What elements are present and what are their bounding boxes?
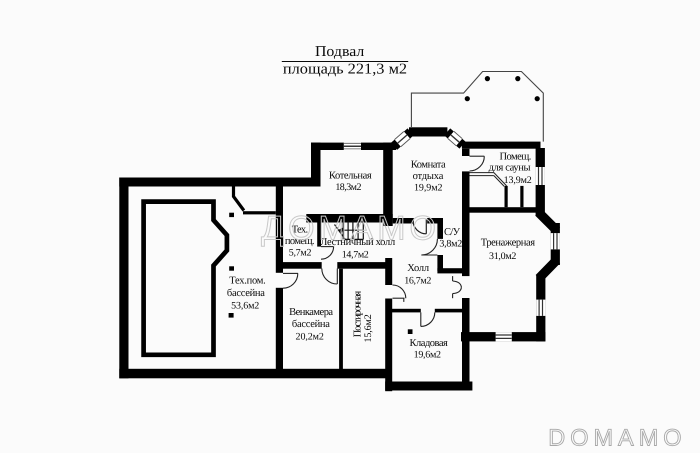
svg-text:для сауны: для сауны <box>489 162 531 173</box>
svg-text:31,0м2: 31,0м2 <box>489 251 516 262</box>
svg-text:Тренажерная: Тренажерная <box>481 238 536 249</box>
svg-text:16,7м2: 16,7м2 <box>404 276 431 287</box>
svg-text:площадь 221,3 м2: площадь 221,3 м2 <box>283 61 407 77</box>
svg-text:19,9м2: 19,9м2 <box>414 183 443 194</box>
svg-text:С/У: С/У <box>444 227 461 238</box>
svg-text:15,6м2: 15,6м2 <box>363 314 374 342</box>
svg-text:Тех.пом.: Тех.пом. <box>229 275 266 286</box>
svg-text:Комната: Комната <box>411 160 446 171</box>
svg-text:20,2м2: 20,2м2 <box>296 332 324 343</box>
svg-text:53,6м2: 53,6м2 <box>231 301 259 312</box>
svg-text:18,3м2: 18,3м2 <box>335 182 361 193</box>
svg-text:DOMAMO: DOMAMO <box>548 424 686 450</box>
svg-text:Холл: Холл <box>407 263 429 274</box>
svg-text:19,6м2: 19,6м2 <box>414 350 441 361</box>
svg-text:3,8м2: 3,8м2 <box>439 239 462 250</box>
svg-text:Кладовая: Кладовая <box>410 338 449 349</box>
svg-text:Венкамера: Венкамера <box>289 307 333 318</box>
svg-text:отдыха: отдыха <box>413 171 444 182</box>
svg-text:Котельная: Котельная <box>329 170 372 181</box>
svg-text:бассейна: бассейна <box>292 319 330 330</box>
svg-text:ДОМАМО: ДОМАМО <box>261 210 440 248</box>
svg-text:13,9м2: 13,9м2 <box>504 175 532 186</box>
svg-text:Постирочная: Постирочная <box>353 291 364 338</box>
svg-text:Подвал: Подвал <box>315 44 365 60</box>
svg-text:5,7м2: 5,7м2 <box>289 248 312 259</box>
svg-text:бассейна: бассейна <box>227 288 265 299</box>
svg-text:14,7м2: 14,7м2 <box>342 250 369 261</box>
svg-text:Помещ.: Помещ. <box>499 152 531 163</box>
